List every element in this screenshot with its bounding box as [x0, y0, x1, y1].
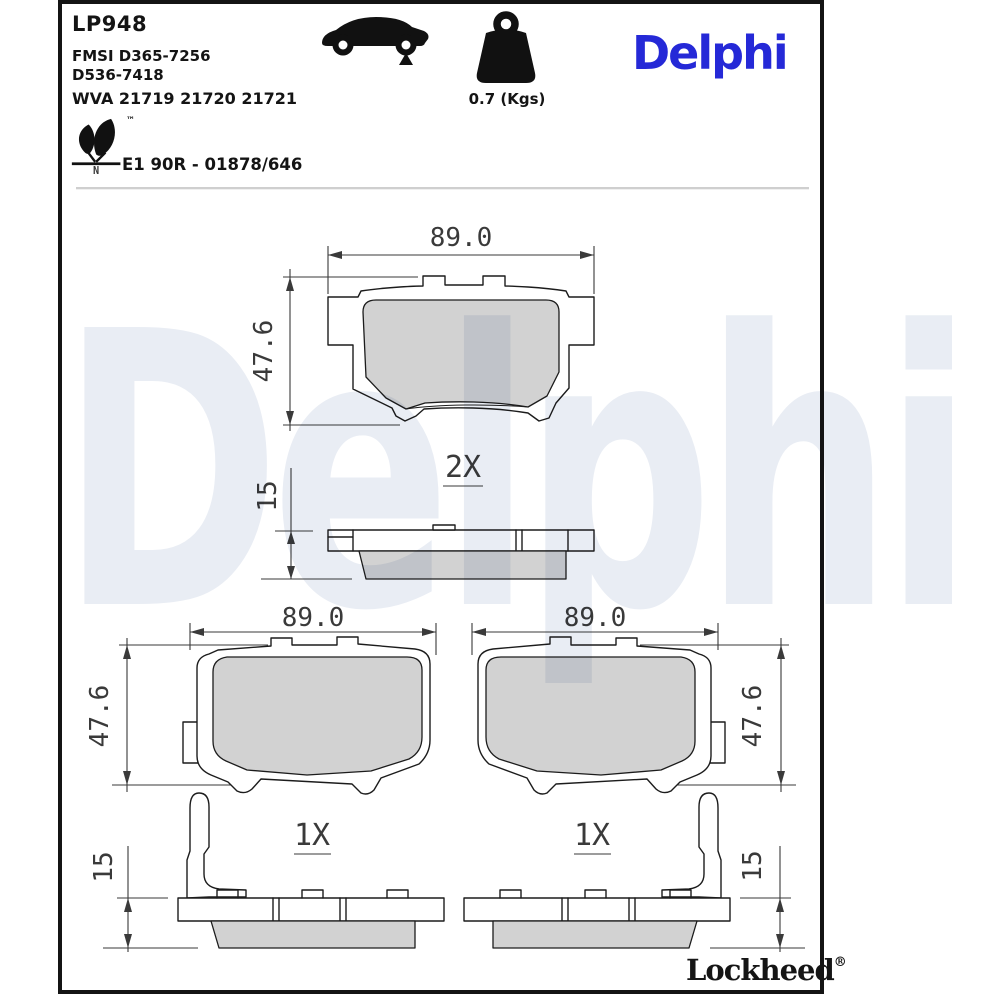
pad-ear-tab — [183, 722, 198, 763]
assembly-thickness-label: 15 — [253, 480, 283, 511]
trademark-symbol: ™ — [126, 116, 135, 126]
technical-drawing: 89.0 47.6 15 2X 89.0 47.6 15 1X 89.0 47.… — [0, 0, 1000, 1000]
eco-letter: N — [93, 165, 99, 177]
weight-label: 0.7 (Kgs) — [452, 90, 562, 108]
wva-codes: WVA 21719 21720 21721 — [72, 89, 297, 108]
delphi-logo: Delphi — [632, 26, 787, 80]
car-icon — [316, 8, 436, 66]
brake-pad-spec-sheet: { "header": { "part_number": "LP948", "f… — [0, 0, 1000, 1000]
pad-right-qty-label: 1X — [574, 818, 610, 853]
pad-left-width-label: 89.0 — [282, 603, 345, 633]
pad-right-height-label: 47.6 — [738, 685, 768, 748]
assembly-qty-label: 2X — [445, 450, 481, 485]
lockheed-logo: Lockheed® — [686, 953, 846, 987]
assembly-height-label: 47.6 — [249, 320, 279, 383]
registered-mark: ® — [834, 955, 846, 970]
assembly-friction-pad — [363, 300, 559, 409]
assembly-side-pad — [359, 551, 566, 579]
weight-icon — [466, 11, 546, 89]
pad-side-backplate — [178, 898, 444, 921]
pad-left-qty-label: 1X — [294, 818, 330, 853]
assembly-side-tab — [433, 525, 455, 530]
pad-friction-face — [213, 657, 422, 775]
homologation-number: E1 90R - 01878/646 — [122, 155, 302, 174]
fmsi-code-line2: D536-7418 — [72, 66, 164, 84]
lockheed-wordmark: Lockheed — [686, 953, 834, 987]
pad-spring-clip — [187, 793, 246, 898]
pad-side-material — [211, 921, 415, 948]
eco-leaf-icon: N — [70, 114, 126, 178]
header-separator — [76, 187, 809, 190]
pad-right-width-label: 89.0 — [564, 603, 627, 633]
pad-left-thickness-label: 15 — [89, 851, 119, 882]
assembly-side-backplate — [328, 530, 594, 551]
assembly-width-label: 89.0 — [430, 223, 493, 253]
pad-left-height-label: 47.6 — [85, 685, 115, 748]
pad-unit-drawing-mirrored — [464, 623, 805, 952]
fmsi-code-line1: FMSI D365-7256 — [72, 47, 211, 65]
assembly-side-view — [261, 468, 594, 579]
pad-unit-drawing — [103, 623, 444, 952]
pad-right-thickness-label: 15 — [738, 850, 768, 881]
assembly-front-view — [283, 246, 594, 431]
part-number: LP948 — [72, 12, 147, 36]
